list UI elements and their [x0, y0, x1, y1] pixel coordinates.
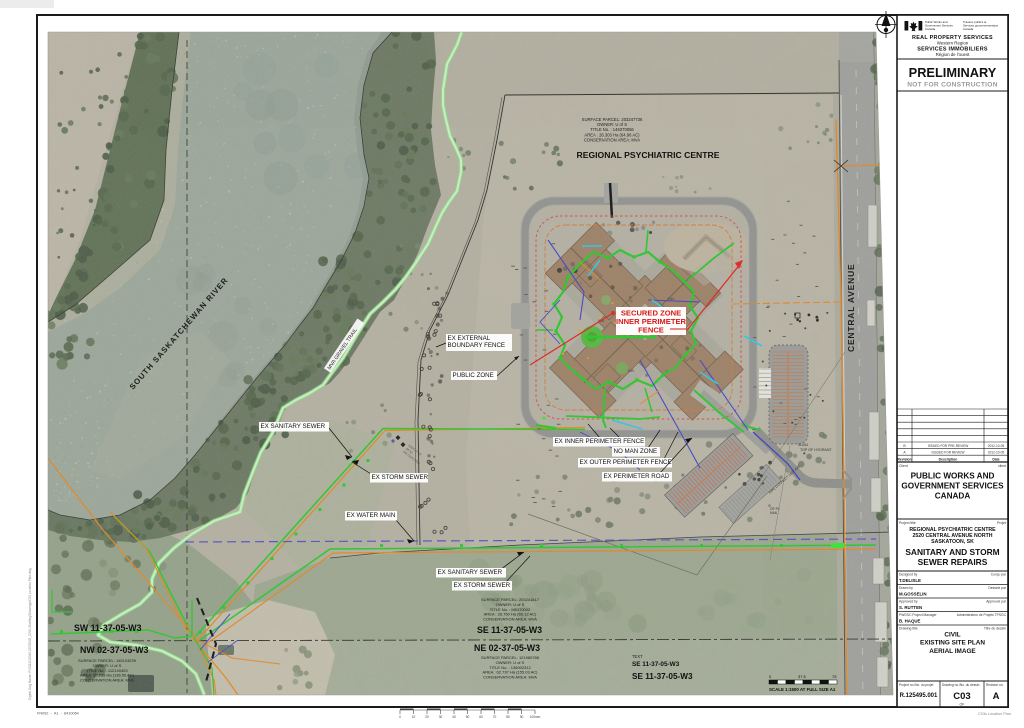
svg-text:R.125495.001: R.125495.001 — [900, 693, 938, 699]
svg-text:REGIONAL PSYCHIATRIC CENTRE: REGIONAL PSYCHIATRIC CENTRE — [577, 150, 720, 160]
svg-text:40: 40 — [452, 715, 456, 719]
svg-text:NO MAN ZONE: NO MAN ZONE — [614, 448, 658, 455]
svg-text:ISSUED FOR PRE-REVIEW: ISSUED FOR PRE-REVIEW — [928, 444, 969, 448]
svg-text:EX INNER PERIMETER FENCE: EX INNER PERIMETER FENCE — [555, 438, 645, 445]
svg-text:SU441: SU441 — [798, 443, 808, 447]
svg-text:SE 11-37-05-W3: SE 11-37-05-W3 — [632, 672, 693, 681]
svg-text:Drawn by: Drawn by — [899, 586, 913, 590]
svg-text:EX STORM SEWER: EX STORM SEWER — [454, 582, 511, 589]
svg-text:FN092 - A1 - 8410064: FN092 - A1 - 8410064 — [37, 712, 79, 716]
svg-text:PUBLIC ZONE: PUBLIC ZONE — [453, 372, 494, 379]
svg-text:PWGSC Project Manager: PWGSC Project Manager — [899, 613, 937, 617]
svg-text:T.DELISLE: T.DELISLE — [899, 578, 921, 583]
svg-text:EX WATER MAIN: EX WATER MAIN — [347, 512, 396, 519]
svg-text:client: client — [998, 464, 1006, 468]
svg-text:SEWER REPAIRS: SEWER REPAIRS — [918, 557, 988, 567]
svg-text:S. RUTTEN: S. RUTTEN — [899, 605, 922, 610]
svg-text:EX EXTERNAL: EX EXTERNAL — [448, 335, 491, 342]
svg-text:SW 11-37-05-W3: SW 11-37-05-W3 — [74, 623, 142, 633]
svg-text:A: A — [993, 691, 1000, 702]
svg-text:Canada: Canada — [963, 27, 974, 31]
svg-text:10: 10 — [412, 715, 416, 719]
svg-text:Description: Description — [939, 457, 958, 461]
svg-text:FENCE: FENCE — [638, 326, 664, 335]
svg-text:100mm: 100mm — [530, 715, 541, 719]
svg-text:37.5: 37.5 — [798, 674, 807, 679]
svg-text:Client: Client — [899, 464, 908, 468]
svg-text:Project title: Project title — [899, 521, 916, 525]
svg-text:Project no./No. du projet: Project no./No. du projet — [899, 683, 933, 687]
svg-text:Revision no.: Revision no. — [986, 683, 1004, 687]
svg-text:CENTRAL AVENUE: CENTRAL AVENUE — [846, 264, 856, 353]
svg-text:Projet: Projet — [997, 521, 1006, 525]
svg-text:SE 11-37-05-W3: SE 11-37-05-W3 — [632, 661, 680, 668]
svg-text:EX OUTER PERIMETER FENCE: EX OUTER PERIMETER FENCE — [580, 459, 672, 466]
svg-text:OF: OF — [960, 703, 966, 707]
svg-text:CANADA: CANADA — [935, 492, 971, 501]
svg-text:Designed by: Designed by — [899, 573, 918, 577]
svg-text:Approved by: Approved by — [899, 600, 918, 604]
svg-text:C03: C03 — [953, 691, 970, 702]
svg-text:GOVERNMENT SERVICES: GOVERNMENT SERVICES — [901, 482, 1004, 491]
svg-text:60: 60 — [479, 715, 483, 719]
svg-text:50: 50 — [466, 715, 470, 719]
svg-text:SASKATOON, SK: SASKATOON, SK — [931, 539, 974, 545]
svg-text:NE 02-37-05-W3: NE 02-37-05-W3 — [474, 643, 540, 653]
svg-text:CONSERVATION AREA: MVA: CONSERVATION AREA: MVA — [80, 678, 134, 683]
svg-text:Drawing no./No. du dessin: Drawing no./No. du dessin — [942, 683, 980, 687]
svg-text:CONSERVATION AREA: MVA: CONSERVATION AREA: MVA — [483, 617, 537, 622]
svg-text:Région de l'ouest: Région de l'ouest — [936, 52, 971, 57]
svg-text:SANITARY AND STORM: SANITARY AND STORM — [905, 547, 999, 557]
svg-text:70: 70 — [493, 715, 497, 719]
svg-text:Revision: Revision — [897, 457, 911, 461]
svg-text:Administrateur de Projets TPSG: Administrateur de Projets TPSGC — [957, 613, 1007, 617]
svg-text:20: 20 — [425, 715, 429, 719]
svg-text:B. HAQUE: B. HAQUE — [899, 619, 921, 624]
svg-text:Titre du dessin: Titre du dessin — [984, 627, 1006, 631]
svg-text:CONSERVATION AREA: MVA: CONSERVATION AREA: MVA — [483, 675, 537, 680]
svg-text:TEXT: TEXT — [632, 654, 643, 659]
svg-text:NAIL: NAIL — [770, 511, 778, 515]
svg-text:EX STORM SEWER: EX STORM SEWER — [372, 474, 429, 481]
svg-text:Western Region: Western Region — [937, 41, 969, 46]
svg-text:EXISTING SITE PLAN: EXISTING SITE PLAN — [920, 640, 985, 647]
svg-text:EX PERIMETER ROAD: EX PERIMETER ROAD — [604, 473, 670, 480]
svg-text:0: 0 — [399, 715, 401, 719]
svg-text:Canada: Canada — [925, 27, 936, 31]
svg-text:Dessiné par: Dessiné par — [988, 586, 1006, 590]
svg-text:Drawing title: Drawing title — [899, 627, 918, 631]
svg-text:CONSERVATION AREA: MVA: CONSERVATION AREA: MVA — [584, 137, 640, 142]
svg-text:C03s Location Plan: C03s Location Plan — [978, 712, 1011, 716]
svg-text:30: 30 — [439, 715, 443, 719]
svg-text:Conçu par: Conçu par — [991, 573, 1007, 577]
svg-text:SCALE 1:1500 AT FULL SIZE A1: SCALE 1:1500 AT FULL SIZE A1 — [769, 687, 836, 692]
svg-text:NOT FOR CONSTRUCTION: NOT FOR CONSTRUCTION — [907, 82, 998, 89]
svg-text:NW 02-37-05-W3: NW 02-37-05-W3 — [80, 645, 149, 655]
svg-text:Digital Dwg Name: P:\2012\1204: Digital Dwg Name: P:\2012\12049-007\ENG_… — [28, 568, 32, 700]
svg-text:TOP OF HYDRANT: TOP OF HYDRANT — [800, 448, 832, 452]
svg-text:SE 11-37-05-W3: SE 11-37-05-W3 — [477, 625, 542, 635]
svg-text:PRELIMINARY: PRELIMINARY — [909, 65, 997, 80]
svg-text:90: 90 — [520, 715, 524, 719]
svg-text:M.GOSSELIN: M.GOSSELIN — [899, 592, 927, 597]
svg-text:80: 80 — [506, 715, 510, 719]
svg-text:EX SANITARY SEWER: EX SANITARY SEWER — [438, 569, 503, 576]
svg-text:2012-10-05: 2012-10-05 — [988, 451, 1005, 455]
svg-text:EX SANITARY SEWER: EX SANITARY SEWER — [261, 423, 326, 430]
svg-text:Date: Date — [992, 457, 999, 461]
svg-text:Approuvé par: Approuvé par — [986, 600, 1007, 604]
svg-text:AERIAL IMAGE: AERIAL IMAGE — [929, 648, 976, 655]
svg-text:75: 75 — [832, 674, 837, 679]
svg-text:CIVIL: CIVIL — [944, 632, 960, 639]
svg-text:PUBLIC WORKS AND: PUBLIC WORKS AND — [911, 472, 995, 481]
svg-text:2012-10-05: 2012-10-05 — [988, 444, 1005, 448]
svg-text:BOUNDARY FENCE: BOUNDARY FENCE — [448, 342, 506, 349]
svg-text:ISSUED FOR REVIEW: ISSUED FOR REVIEW — [932, 451, 965, 455]
